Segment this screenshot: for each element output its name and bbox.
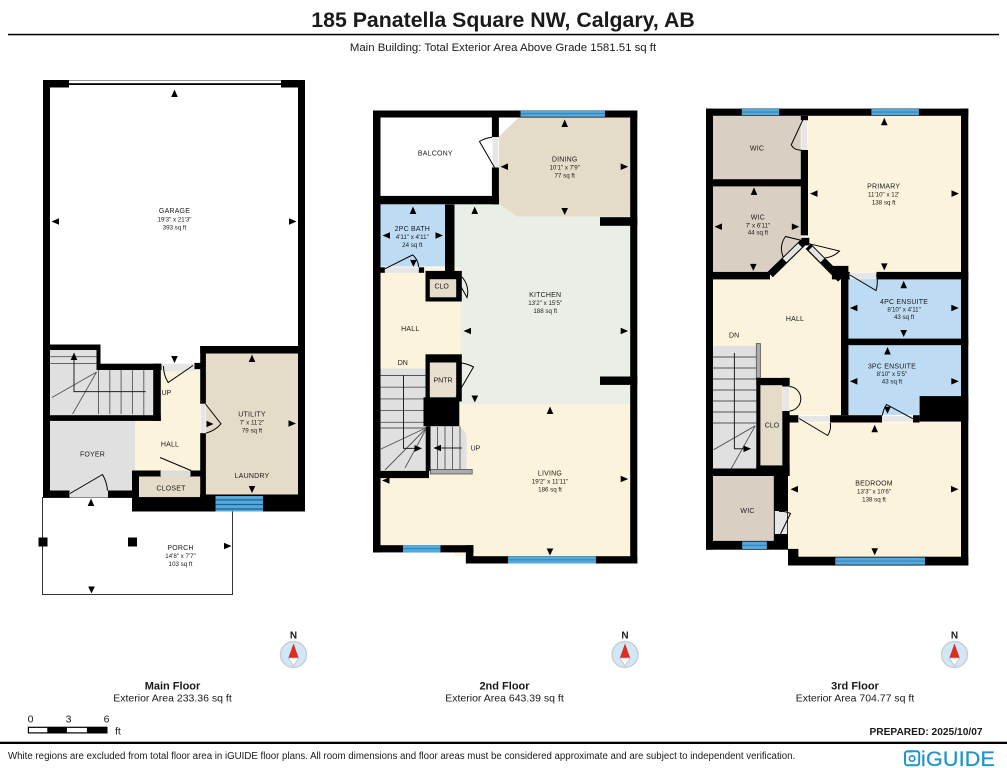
svg-text:WIC: WIC — [740, 508, 754, 515]
svg-text:19'2" x 11'11": 19'2" x 11'11" — [532, 479, 568, 486]
svg-text:UP: UP — [162, 390, 172, 397]
svg-text:HALL: HALL — [401, 326, 419, 333]
svg-text:188 sq ft: 188 sq ft — [533, 308, 557, 315]
svg-text:43 sq ft: 43 sq ft — [882, 379, 903, 386]
svg-text:138 sq ft: 138 sq ft — [862, 496, 886, 503]
svg-text:UP: UP — [471, 446, 481, 453]
svg-text:KITCHEN: KITCHEN — [529, 292, 561, 299]
svg-text:Exterior Area 704.77 sq ft: Exterior Area 704.77 sq ft — [796, 693, 915, 705]
svg-text:HALL: HALL — [161, 442, 179, 449]
svg-text:UTILITY: UTILITY — [238, 412, 266, 419]
svg-text:BALCONY: BALCONY — [418, 150, 453, 157]
svg-text:3PC ENSUITE: 3PC ENSUITE — [868, 364, 916, 371]
svg-text:6: 6 — [104, 714, 110, 726]
svg-text:Main Building: Total Exterior: Main Building: Total Exterior Area Above… — [350, 42, 657, 54]
svg-text:393 sq ft: 393 sq ft — [163, 225, 187, 232]
svg-text:138 sq ft: 138 sq ft — [872, 199, 896, 206]
svg-text:HALL: HALL — [786, 316, 804, 323]
svg-text:Exterior Area 233.36 sq ft: Exterior Area 233.36 sq ft — [113, 693, 232, 705]
svg-text:N: N — [951, 631, 958, 642]
svg-text:CLO: CLO — [765, 423, 780, 430]
svg-text:WIC: WIC — [751, 215, 765, 222]
svg-text:10'1" x 7'9": 10'1" x 7'9" — [549, 165, 580, 172]
svg-text:PREPARED: 2025/10/07: PREPARED: 2025/10/07 — [869, 727, 982, 738]
svg-text:PRIMARY: PRIMARY — [867, 183, 900, 190]
svg-text:Main Floor: Main Floor — [145, 681, 201, 693]
svg-text:GARAGE: GARAGE — [159, 208, 190, 215]
svg-text:8'10" x 4'11": 8'10" x 4'11" — [887, 307, 920, 314]
svg-text:Exterior Area 643.39 sq ft: Exterior Area 643.39 sq ft — [445, 693, 564, 705]
svg-text:2nd Floor: 2nd Floor — [479, 681, 530, 693]
svg-text:4PC ENSUITE: 4PC ENSUITE — [880, 299, 928, 306]
svg-text:77 sq ft: 77 sq ft — [555, 173, 576, 180]
svg-text:43 sq ft: 43 sq ft — [894, 314, 915, 321]
svg-text:186 sq ft: 186 sq ft — [538, 487, 562, 494]
svg-text:3: 3 — [66, 714, 72, 726]
svg-text:7' x 11'2": 7' x 11'2" — [240, 420, 264, 427]
svg-text:iGUIDE: iGUIDE — [921, 747, 995, 768]
svg-text:13'3" x 10'6": 13'3" x 10'6" — [857, 488, 891, 495]
svg-text:PORCH: PORCH — [167, 545, 193, 552]
svg-text:FOYER: FOYER — [80, 452, 105, 459]
svg-text:44 sq ft: 44 sq ft — [748, 230, 769, 237]
svg-text:CLOSET: CLOSET — [156, 486, 186, 493]
svg-text:3rd Floor: 3rd Floor — [831, 681, 879, 693]
svg-text:WIC: WIC — [750, 145, 764, 152]
svg-text:103 sq ft: 103 sq ft — [169, 561, 193, 568]
svg-text:BEDROOM: BEDROOM — [855, 480, 893, 487]
svg-text:CLO: CLO — [434, 284, 449, 291]
svg-text:N: N — [621, 631, 628, 642]
svg-text:7' x 6'11": 7' x 6'11" — [746, 222, 770, 229]
svg-text:White regions are excluded fro: White regions are excluded from total fl… — [8, 751, 795, 762]
svg-text:24 sq ft: 24 sq ft — [402, 242, 423, 249]
svg-text:79 sq ft: 79 sq ft — [242, 428, 263, 435]
svg-text:0: 0 — [28, 714, 34, 726]
svg-text:185 Panatella Square NW, Calga: 185 Panatella Square NW, Calgary, AB — [311, 8, 695, 32]
svg-text:DN: DN — [398, 360, 408, 367]
svg-text:19'3" x 21'3": 19'3" x 21'3" — [158, 217, 192, 224]
svg-text:8'10" x 5'5": 8'10" x 5'5" — [877, 371, 908, 378]
svg-text:13'2" x 15'5": 13'2" x 15'5" — [528, 300, 562, 307]
svg-text:14'8" x 7'7": 14'8" x 7'7" — [165, 553, 196, 560]
svg-text:2PC BATH: 2PC BATH — [395, 226, 430, 233]
svg-text:DINING: DINING — [552, 157, 578, 164]
svg-text:DN: DN — [729, 333, 739, 340]
svg-text:N: N — [290, 631, 297, 642]
svg-text:4'11" x 4'11": 4'11" x 4'11" — [396, 234, 429, 241]
svg-text:11'10" x 12': 11'10" x 12' — [868, 191, 899, 198]
svg-text:ft: ft — [115, 726, 121, 738]
svg-text:LAUNDRY: LAUNDRY — [235, 473, 270, 480]
svg-text:PNTR: PNTR — [433, 378, 452, 385]
svg-text:LIVING: LIVING — [538, 471, 562, 478]
